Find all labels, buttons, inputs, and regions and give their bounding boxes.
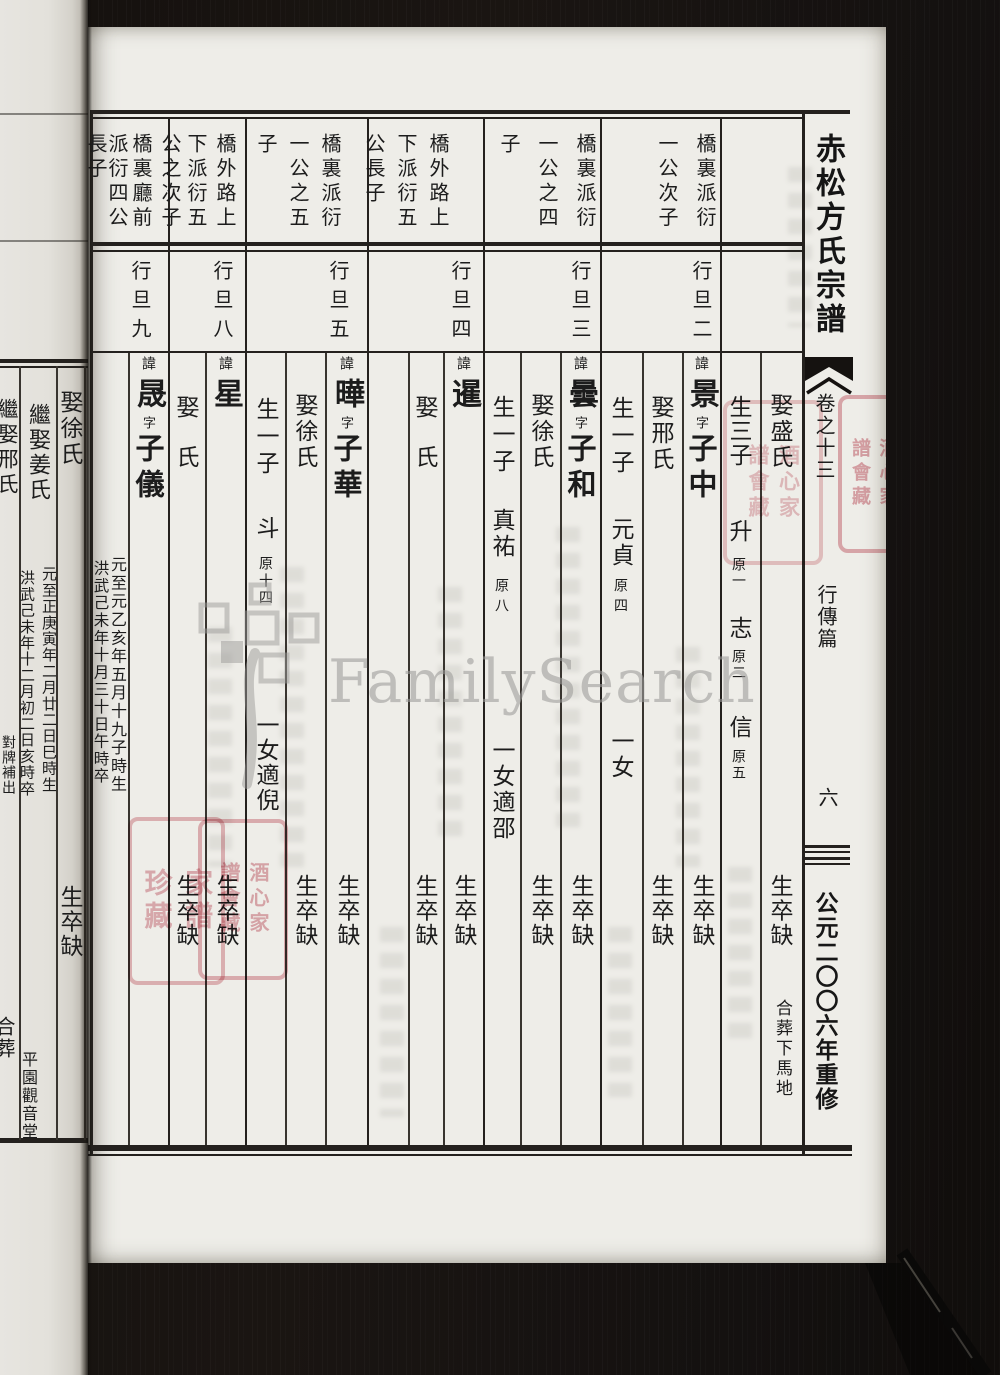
son-name: 志: [726, 616, 749, 639]
margin-vital-note: 生卒缺: [57, 885, 80, 959]
margin-birth-date: 元至正庚寅年二月廿二日巳時生: [41, 566, 56, 793]
seal-glyphs: 酒心家 譜會藏: [214, 862, 272, 937]
children-count: 生一子: [489, 395, 512, 476]
vital-note: 生卒缺: [767, 874, 790, 948]
grid-line: [600, 117, 602, 1147]
section-label: 行傳篇: [816, 584, 836, 650]
divider-bars: [804, 851, 850, 853]
frame-line: [90, 250, 803, 252]
taboo-name-prefix: 諱: [573, 356, 587, 370]
vital-note: 生卒缺: [689, 874, 712, 948]
grid-line: [483, 117, 485, 1147]
margin-burial-note: 合葬: [0, 1016, 14, 1060]
grid-line: [128, 353, 130, 1145]
grid-line: [367, 117, 369, 1147]
taboo-name-prefix: 諱: [456, 356, 470, 370]
margin-burial-place: 平園觀音堂: [20, 1051, 36, 1141]
divider-bars: [804, 857, 850, 860]
courtesy-prefix: 字: [141, 416, 154, 429]
header-branch-line: 橋外路上: [428, 133, 448, 231]
header-branch-line: 公長子: [364, 133, 384, 207]
grid-line: [642, 353, 644, 1145]
header-branch-line: 橋裏廳前: [131, 133, 151, 231]
seal-glyphs: 酒心家 譜會藏: [845, 438, 886, 510]
given-name: 暹: [448, 378, 478, 408]
vital-note: 生卒缺: [648, 874, 671, 948]
courtesy-name: 子華: [331, 433, 360, 505]
given-name: 景: [686, 378, 716, 408]
son-name: 斗: [253, 516, 276, 539]
courtesy-prefix: 字: [573, 416, 586, 429]
vital-note: 生卒缺: [292, 874, 315, 948]
page-fold-shadow: [80, 0, 92, 1375]
son-order-tag: 原八: [494, 578, 508, 618]
taboo-name-prefix: 諱: [141, 356, 155, 370]
rank-label: 行旦二: [691, 260, 711, 347]
library-seal: 酒心家 譜會藏: [838, 395, 886, 553]
divider-bars: [804, 863, 850, 865]
grid-line: [325, 353, 327, 1145]
frame-line: [90, 242, 803, 246]
header-branch-line: 一公之四: [537, 133, 557, 231]
children-count: 生一子: [253, 397, 276, 478]
frame-line: [0, 113, 88, 115]
spouse-entry: 娶 氏: [412, 395, 435, 470]
death-date: 洪武己未年十月三十日午時卒: [92, 560, 108, 785]
vital-note: 生卒缺: [412, 874, 435, 948]
son-name: 信: [726, 715, 749, 738]
given-name: 曄: [331, 378, 361, 408]
birth-date: 元至元乙亥年五月十九子時生: [109, 556, 125, 794]
taboo-name-prefix: 諱: [694, 356, 708, 370]
grid-line: [443, 353, 445, 1145]
son-order-tag: 原四: [613, 578, 627, 618]
seal-glyphs: 酒心家 譜會藏: [743, 444, 804, 522]
taboo-name-prefix: 諱: [218, 356, 232, 370]
margin-death-date: 洪武己未年十二月初二日亥時卒: [19, 570, 34, 797]
daughter-note: 一女: [608, 729, 631, 781]
book-scan-photo: 娶徐氏 繼娶姜氏 元至正庚寅年二月廿二日巳時生 洪武己未年十二月初二日亥時卒 繼…: [0, 0, 1000, 1375]
rank-label: 行旦八: [212, 260, 232, 347]
spouse-entry: 娶徐氏: [292, 393, 315, 471]
library-seal: 酒心家 譜會藏: [723, 400, 823, 565]
vital-note: 生卒缺: [528, 874, 551, 948]
frame-line: [88, 1154, 852, 1156]
familysearch-logo: [195, 579, 325, 794]
vital-note: 生卒缺: [334, 874, 357, 948]
rank-label: 行旦四: [450, 260, 470, 347]
daughter-note: 一女適邵: [489, 738, 512, 842]
courtesy-name: 子中: [686, 433, 715, 505]
frame-line: [88, 1145, 852, 1151]
frame-line: [802, 110, 805, 1156]
frame-line: [90, 351, 803, 353]
genealogy-page: 橋裏派衍 一公次子 橋裏派衍 一公之四 子 橋外路上 下派衍五 公長子 橋裏派衍…: [88, 27, 886, 1263]
frame-line: [90, 117, 803, 119]
son-name: 真祐: [489, 508, 512, 560]
fishtail-mark: [805, 357, 853, 397]
margin-spouse-entry: 娶徐氏: [57, 390, 80, 468]
courtesy-prefix: 字: [339, 416, 352, 429]
header-branch-line: 橋裏派衍: [575, 133, 595, 231]
rank-label: 行旦九: [130, 260, 150, 347]
courtesy-name: 子儀: [133, 433, 162, 505]
bleedthrough: [438, 587, 462, 847]
watermark-text: FamilySearch: [328, 647, 756, 717]
given-name: 晟: [133, 378, 163, 408]
header-branch-line: 橋外路上: [215, 133, 235, 231]
divider-bars: [804, 845, 850, 848]
frame-line: [0, 359, 88, 363]
grid-line: [720, 117, 722, 1147]
adjacent-page-edge: 娶徐氏 繼娶姜氏 元至正庚寅年二月廿二日巳時生 洪武己未年十二月初二日亥時卒 繼…: [0, 0, 88, 1375]
header-branch-line: 子: [256, 133, 276, 158]
header-branch-line: 一公次子: [657, 133, 677, 231]
frame-line: [0, 366, 88, 368]
son-order-tag: 原五: [731, 749, 745, 781]
given-name: 曇: [565, 378, 595, 408]
header-branch-line: 下派衍五: [396, 133, 416, 231]
edition-note: 公元二〇〇六年重修: [813, 891, 836, 1112]
header-branch-line: 一公之五: [288, 133, 308, 231]
library-seal: 酒心家 譜會藏: [198, 819, 288, 980]
courtesy-prefix: 字: [694, 416, 707, 429]
header-branch-line: 派衍四公: [107, 133, 127, 231]
given-name: 星: [210, 378, 240, 408]
frame-line: [0, 240, 88, 242]
son-name: 元貞: [608, 517, 631, 569]
grid-line: [520, 353, 522, 1145]
header-branch-line: 橋裏派衍: [320, 133, 340, 231]
margin-second-spouse-entry: 繼娶姜氏: [26, 403, 48, 503]
book-title: 赤松方氏宗譜: [812, 133, 842, 337]
margin-third-spouse-entry: 繼娶邢氏: [0, 398, 17, 498]
frame-line: [0, 1138, 88, 1143]
header-branch-line: 下派衍五: [186, 133, 206, 231]
bleedthrough: [380, 927, 404, 1117]
grid-line: [168, 117, 170, 1147]
burial-note: 合葬下馬地: [773, 999, 790, 1099]
courtesy-name: 子和: [565, 433, 594, 505]
bleedthrough: [608, 927, 632, 1097]
rank-label: 行旦三: [570, 260, 590, 347]
bleedthrough: [788, 167, 812, 327]
header-branch-line: 橋裏派衍: [695, 133, 715, 231]
header-branch-line: 公之次子: [160, 133, 180, 231]
frame-line: [90, 110, 850, 114]
children-count: 生一子: [608, 396, 631, 477]
vital-note: 生卒缺: [451, 874, 474, 948]
grid-line: [408, 353, 410, 1145]
bleedthrough: [728, 867, 752, 1047]
taboo-name-prefix: 諱: [339, 356, 353, 370]
grid-line: [560, 353, 562, 1145]
spouse-entry: 娶 氏: [173, 395, 196, 470]
vital-note: 生卒缺: [568, 874, 591, 948]
header-branch-line: 子: [499, 133, 519, 158]
corner-strap: [840, 1200, 1000, 1375]
folio-number: 六: [817, 787, 837, 807]
margin-tablet-note: 對牌補出: [1, 735, 15, 795]
rank-label: 行旦五: [328, 260, 348, 347]
spouse-entry: 娶徐氏: [528, 393, 551, 471]
spouse-entry: 娶邢氏: [648, 395, 671, 473]
